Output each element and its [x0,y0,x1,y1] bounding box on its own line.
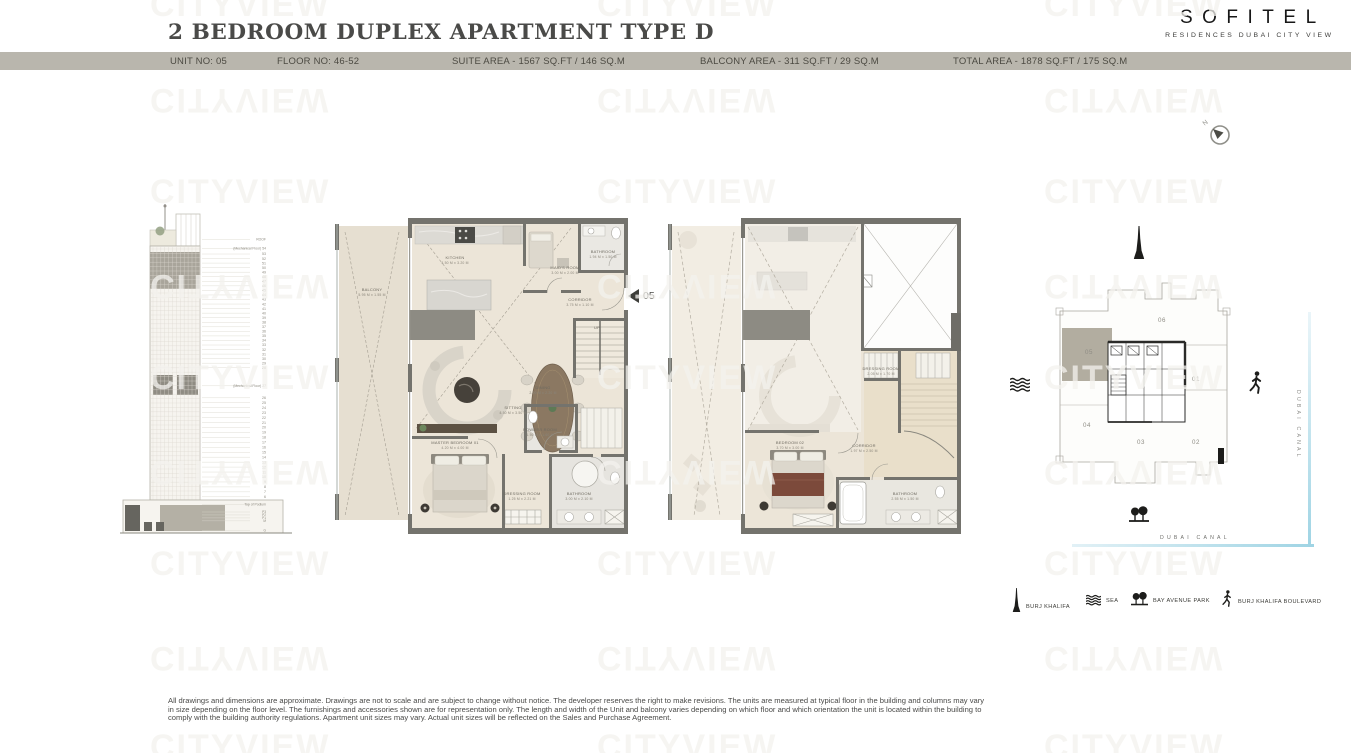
watermark-text: CITYVIEW [597,545,777,584]
elevation-floor-labels: ROOF(Mechanical Floor) 54535251504948474… [202,238,267,533]
svg-text:52: 52 [262,257,266,261]
brand-subtitle: RESIDENCES DUBAI CITY VIEW [1165,32,1333,39]
svg-text:39: 39 [262,316,266,320]
watermark-text: CITYVIEW [597,80,777,119]
mechanical-band-left [153,375,173,395]
structural-block [409,310,475,340]
room-label-sitting: SITTING4.50 M x 3.50 M [481,406,545,416]
svg-text:30: 30 [262,357,266,361]
svg-text:48: 48 [262,275,266,279]
svg-text:15: 15 [262,450,266,454]
svg-text:43: 43 [262,298,266,302]
crown-lattice [176,214,200,246]
svg-text:33: 33 [262,343,266,347]
watermark-text: CITYVIEW [150,80,330,119]
watermark-text: CITYVIEW [597,173,777,212]
park-icon [1129,506,1149,523]
svg-text:ROOF: ROOF [256,238,266,242]
svg-text:8: 8 [264,485,266,489]
site-unit-03: 03 [1137,439,1145,446]
vanity [557,510,601,524]
legend-burj-khalifa: BURJ KHALIFA [1012,588,1070,612]
balcony-floor [339,226,408,520]
toilet [612,227,621,239]
site-unit-06: 06 [1158,317,1166,324]
svg-text:9: 9 [264,480,266,484]
svg-text:10: 10 [262,475,266,479]
floorplan-upper-level: BEDROOM 023.70 M x 3.00 M CORRIDOR1.97 M… [668,218,963,535]
room-label-bathroom-top: BATHROOM1.94 M x 1.50 M [571,250,635,260]
svg-text:45: 45 [262,289,266,293]
watermark-text: CITYVIEW [150,545,330,584]
building-elevation: ROOF(Mechanical Floor) 54535251504948474… [120,200,295,545]
brand-logo: SOFITEL RESIDENCES DUBAI CITY VIEW [1165,7,1331,39]
svg-text:26: 26 [262,396,266,400]
pedestrian-icon [1222,590,1233,607]
svg-text:28: 28 [262,366,266,370]
svg-text:17: 17 [262,441,266,445]
svg-text:Top of Podium: Top of Podium [244,503,266,507]
svg-text:20: 20 [262,426,266,430]
site-unit-01: 01 [1192,376,1200,383]
dubai-canal-line-vertical [1308,312,1311,547]
svg-text:6: 6 [264,495,266,499]
park-icon [1131,592,1148,606]
brand-wordmark: SOFITEL [1165,7,1340,29]
svg-text:11: 11 [262,470,266,474]
svg-text:14: 14 [262,455,266,459]
svg-text:25: 25 [262,401,266,405]
svg-text:13: 13 [262,460,266,464]
plant [420,425,427,432]
room-label-corridor: CORRIDOR3.75 M x 1.10 M [548,298,612,308]
svg-text:(Mechanical Floor) 54: (Mechanical Floor) 54 [233,247,266,251]
info-bar: UNIT NO: 05 FLOOR NO: 46-52 SUITE AREA -… [0,52,1351,70]
watermark-text: CITYVIEW [1044,173,1224,212]
room-label-master-bathroom: BATHROOM3.00 M x 2.10 M [547,492,611,502]
sink [588,228,594,234]
dubai-canal-line-horizontal [1072,544,1314,547]
room-label-bedroom-02: BEDROOM 023.70 M x 3.00 M [758,441,822,451]
room-label-kitchen: KITCHEN4.50 M x 3.20 M [423,256,487,266]
site-unit-04: 04 [1083,422,1091,429]
floorplan-lower-level: BALCONY5.95 M x 1.55 M KITCHEN4.50 M x 3… [335,218,630,535]
room-label-dining: DINING2.00 M x 2.20 M [511,386,575,396]
svg-text:23: 23 [262,411,266,415]
svg-text:(Mechanical Floor) 27: (Mechanical Floor) 27 [233,384,266,388]
room-label-dressing: DRESSING ROOM1.25 M x 2.21 M [490,492,554,502]
stairs-up-label: UP [565,326,629,331]
black-wall-segment [1218,448,1224,464]
site-unit-02: 02 [1192,439,1200,446]
compass-icon: N [1196,112,1236,154]
room-label-powder: POWDER ROOM1.50 M x 1.60 M [508,428,572,438]
roof-tree [156,227,165,236]
core [1108,342,1185,422]
stove [455,227,475,243]
floorplan-upper-drawing [668,218,963,535]
watermark-text: CITYVIEW [1044,728,1224,753]
dubai-canal-label-vertical: DUBAI CANAL [1295,390,1301,460]
room-label-bathroom: BATHROOM2.55 M x 1.50 M [873,492,937,502]
room-label-maids-room: MAID'S ROOM3.00 M x 2.00 M [533,266,597,276]
kitchen-island [427,280,491,310]
svg-text:29: 29 [262,361,266,365]
svg-text:7: 7 [264,490,266,494]
svg-text:31: 31 [262,352,266,356]
room-label-balcony: BALCONY5.95 M x 1.55 M [340,288,404,298]
master-bed [433,464,487,512]
room-label-corridor: CORRIDOR1.97 M x 2.50 M [832,444,896,454]
svg-text:49: 49 [262,270,266,274]
balcony-floor-faded [672,226,741,520]
suite-area: SUITE AREA - 1567 SQ.FT / 146 SQ.M [452,56,625,67]
burj-khalifa-icon [1133,226,1145,259]
svg-text:22: 22 [262,416,266,420]
svg-text:18: 18 [262,436,266,440]
total-area: TOTAL AREA - 1878 SQ.FT / 175 SQ.M [953,56,1127,67]
unit-no: UNIT NO: 05 [170,56,227,67]
pedestrian-icon [1249,371,1264,394]
floor-no: FLOOR NO: 46-52 [277,56,359,67]
watermark-text: CITYVIEW [597,638,777,677]
disclaimer-text: All drawings and dimensions are approxim… [168,697,1198,723]
svg-text:47: 47 [262,280,266,284]
svg-text:35: 35 [262,334,266,338]
hall-closet [581,408,622,448]
svg-text:24: 24 [262,406,266,410]
room-label-dressing: DRESSING ROOM2.05 M x 1.70 M [849,367,913,377]
svg-text:M: M [263,519,266,523]
unit-entry-marker: 05 [628,289,655,303]
sea-icon [1086,594,1101,606]
media-wall [417,424,497,433]
balcony-area: BALCONY AREA - 311 SQ.FT / 29 SQ.M [700,56,879,67]
watermark-text: CITYVIEW [597,728,777,753]
legend-burj-khalifa-boulevard: BURJ KHALIFA BOULEVARD [1222,590,1321,607]
svg-text:44: 44 [262,293,266,297]
svg-text:51: 51 [262,261,266,265]
burj-khalifa-icon [1012,588,1021,612]
sea-icon [1010,377,1030,392]
compass-north-label: N [1202,119,1210,128]
watermark-text: CITYVIEW [150,638,330,677]
svg-text:42: 42 [262,302,266,306]
svg-text:19: 19 [262,431,266,435]
svg-text:38: 38 [262,320,266,324]
svg-text:12: 12 [262,465,266,469]
structural-block [742,310,810,340]
svg-text:41: 41 [262,307,266,311]
svg-text:16: 16 [262,446,266,450]
svg-text:40: 40 [262,311,266,315]
wardrobe [505,510,541,524]
svg-text:32: 32 [262,348,266,352]
site-unit-05: 05 [1085,349,1093,356]
svg-text:34: 34 [262,339,266,343]
site-key-plan [1050,275,1240,490]
svg-text:37: 37 [262,325,266,329]
entry-unit-number: 05 [643,290,655,302]
legend-bay-avenue-park: BAY AVENUE PARK [1131,592,1210,606]
watermark-text: CITYVIEW [1044,545,1224,584]
svg-text:21: 21 [262,421,266,425]
page-title: 2 BEDROOM DUPLEX APARTMENT TYPE D [168,20,714,45]
watermark-text: CITYVIEW [150,728,330,753]
svg-text:53: 53 [262,252,266,256]
svg-text:46: 46 [262,284,266,288]
highlighted-floors-band [150,252,200,289]
svg-text:50: 50 [262,266,266,270]
svg-text:36: 36 [262,330,266,334]
floorplan-sheet: 2 BEDROOM DUPLEX APARTMENT TYPE D SOFITE… [0,0,1351,753]
bed-blanket [772,473,824,496]
dubai-canal-label-horizontal: DUBAI CANAL [1160,535,1230,541]
entry-arrow-icon [628,289,639,303]
watermark-text: CITYVIEW [1044,638,1224,677]
legend-sea: SEA [1086,594,1118,606]
room-label-master-bedroom: MASTER BEDROOM 014.20 M x 4.00 M [423,441,487,451]
